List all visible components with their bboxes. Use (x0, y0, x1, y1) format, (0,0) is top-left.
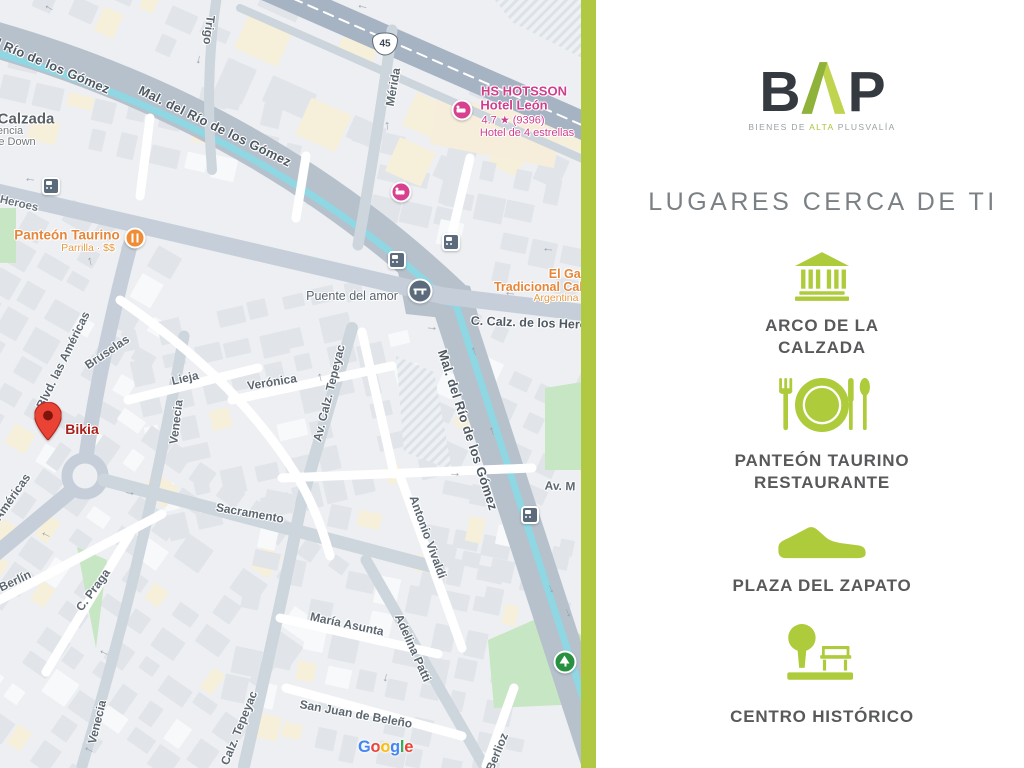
place-label: PLAZA DEL ZAPATO (677, 575, 967, 597)
google-logo-letter: o (380, 738, 390, 756)
slide: Mal. del Río de los GómezMal. del Río de… (0, 0, 1024, 768)
road-arrow-icon: → (23, 174, 37, 190)
location-pin-icon[interactable] (35, 402, 62, 445)
map-street-label: e Down (0, 136, 36, 148)
google-logo-letter: e (404, 738, 413, 756)
logo-lambda-icon (802, 62, 846, 114)
map-poi-label[interactable]: Parrilla · $$ (61, 242, 115, 254)
road-arrow-icon: → (425, 318, 439, 334)
transit-station-icon[interactable] (42, 177, 60, 195)
transit-station-icon[interactable] (388, 251, 406, 269)
map-poi-label[interactable]: 4.7 ★ (9396) (481, 114, 544, 127)
transit-station-icon[interactable] (521, 506, 539, 524)
road-arrow-icon: → (448, 464, 462, 480)
tagline-part: BIENES DE (748, 122, 809, 132)
park-poi-icon[interactable] (554, 651, 577, 674)
map-poi-label[interactable]: Panteón Taurino (14, 228, 120, 243)
place-label: CENTRO HISTÓRICO (677, 706, 967, 728)
shoe-icon (772, 517, 872, 561)
place-item-centro-historico: CENTRO HISTÓRICO (677, 622, 967, 728)
road-arrow-icon: → (379, 670, 396, 685)
road-arrow-icon: → (377, 119, 393, 133)
place-item-arco-de-la-calzada: ARCO DE LA CALZADA (737, 252, 907, 359)
map-poi-label[interactable]: El Gauc (549, 267, 582, 281)
map[interactable]: Mal. del Río de los GómezMal. del Río de… (0, 0, 582, 768)
map-poi-label[interactable]: Hotel de 4 estrellas (480, 127, 574, 139)
google-logo-letter: g (390, 738, 400, 756)
monument-icon (795, 252, 849, 301)
logo-letter-b: B (759, 70, 799, 114)
place-label: PANTEÓN TAURINO RESTAURANTE (707, 450, 937, 494)
google-logo-letter: o (371, 738, 381, 756)
bridge-poi-icon[interactable] (408, 279, 433, 304)
place-item-panteon-taurino: PANTEÓN TAURINO RESTAURANTE (707, 376, 937, 494)
map-street-label: Av. M (544, 478, 575, 493)
road-arrow-icon: → (541, 244, 555, 260)
google-logo-letter: G (358, 738, 371, 756)
logo-letter-p: P (848, 70, 885, 114)
place-label: ARCO DE LA CALZADA (737, 315, 907, 359)
road-arrow-icon: → (192, 52, 209, 67)
bap-logo: B P BIENES DE ALTA PLUSVALÍA (748, 62, 895, 132)
transit-station-icon[interactable] (442, 233, 460, 251)
tagline-part: PLUSVALÍA (834, 122, 896, 132)
logo-tagline: BIENES DE ALTA PLUSVALÍA (748, 122, 895, 132)
restaurant-icon (768, 376, 876, 434)
park-icon (780, 622, 864, 690)
hotel-poi-icon[interactable] (452, 100, 473, 121)
google-logo[interactable]: Google (358, 738, 413, 757)
map-poi-label[interactable]: Bikia (65, 421, 98, 437)
road-arrow-icon: → (122, 482, 137, 499)
road-arrow-icon: → (503, 288, 517, 304)
map-poi-label[interactable]: Hotel León (480, 98, 547, 113)
place-item-plaza-del-zapato: PLAZA DEL ZAPATO (677, 517, 967, 597)
hotel-poi-icon[interactable] (391, 182, 412, 203)
divider-stripe (581, 0, 596, 768)
map-poi-label[interactable]: Puente del amor (306, 289, 398, 303)
map-poi-label[interactable]: Argentina (534, 292, 579, 304)
tagline-part-highlight: ALTA (809, 122, 834, 132)
info-panel: B P BIENES DE ALTA PLUSVALÍA LUGARES CER… (596, 0, 1024, 768)
map-poi-label[interactable]: HS HOTSSON (481, 84, 567, 99)
restaurant-poi-icon[interactable] (125, 228, 146, 249)
page-title: LUGARES CERCA DE TI (648, 188, 997, 217)
